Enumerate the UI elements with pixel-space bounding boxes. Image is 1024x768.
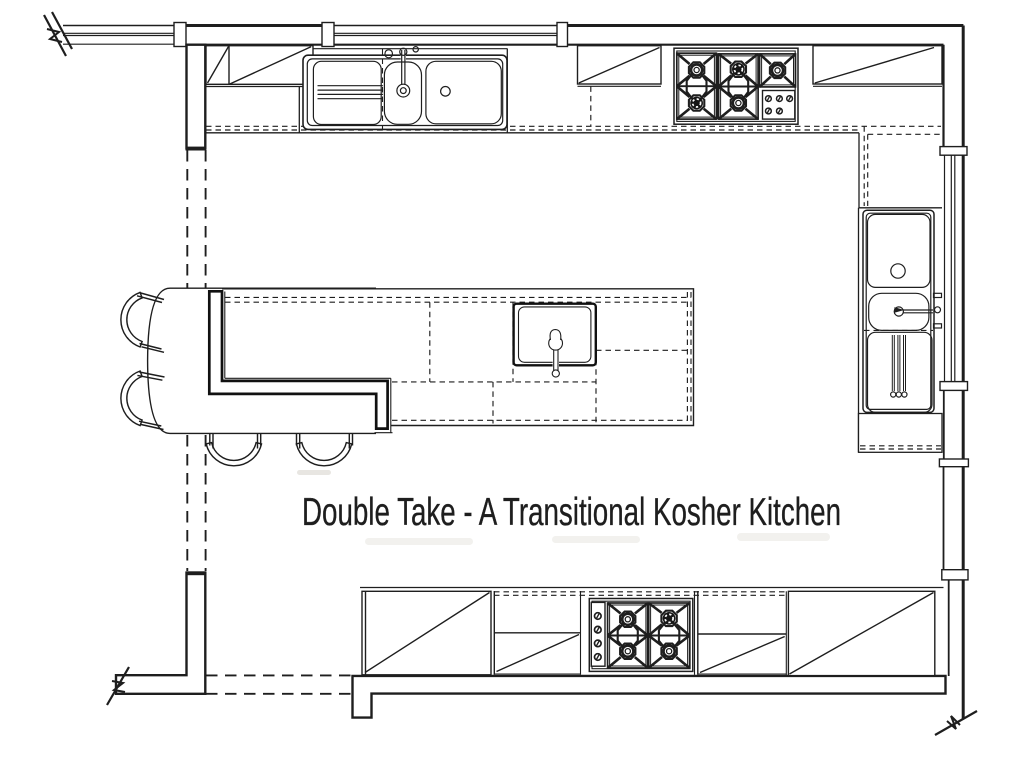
svg-text:Double Take - A Transitional K: Double Take - A Transitional Kosher Kitc… — [302, 491, 841, 534]
